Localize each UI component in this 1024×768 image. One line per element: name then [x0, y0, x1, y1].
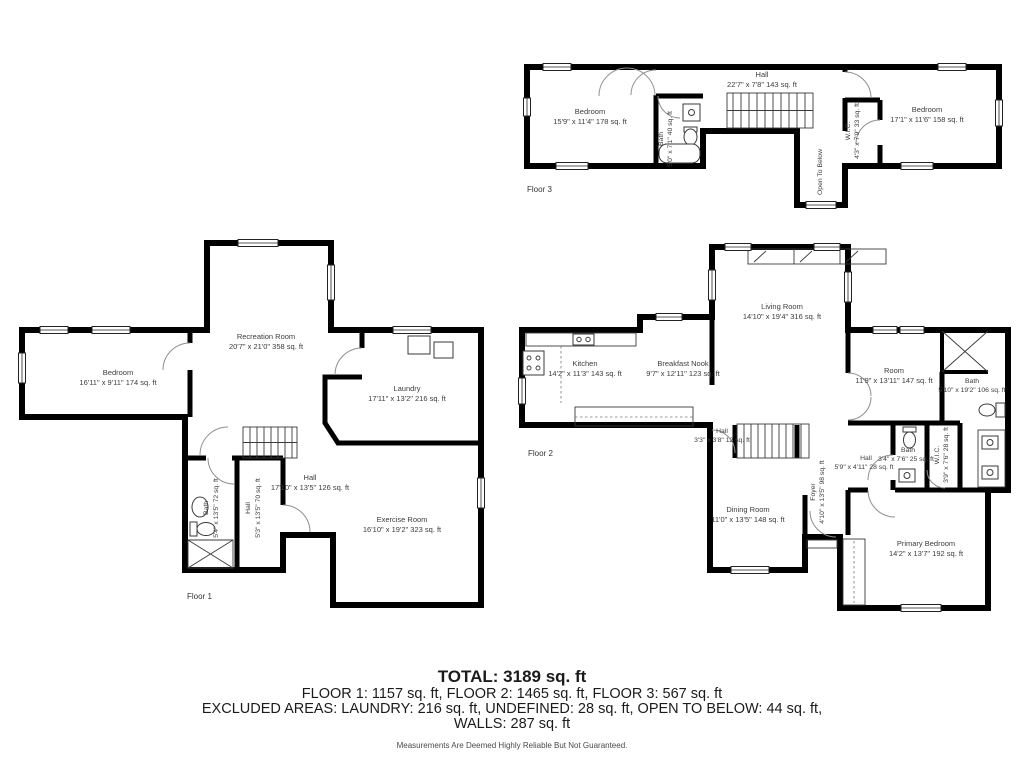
floor2-wic-label: W.I.C. [934, 446, 941, 465]
floor1-outer-walls [22, 243, 481, 605]
floor3-hall-label: Hall [756, 70, 769, 79]
floor2-hall-label: Hall [860, 455, 872, 462]
floor3-bedroom-left-label: Bedroom [575, 107, 605, 116]
summary-block: TOTAL: 3189 sq. ft FLOOR 1: 1157 sq. ft,… [0, 668, 1024, 750]
floor2-bath-small-label: Bath [901, 447, 915, 454]
total-area: TOTAL: 3189 sq. ft [0, 668, 1024, 685]
floor1-exercise-label: Exercise Room [377, 515, 428, 524]
floor2-hall-small-label: Hall [716, 428, 728, 435]
floor2-hall-dims: 5'9" x 4'11" 28 sq. ft [834, 464, 893, 471]
floor2-living-dims: 14'10" x 19'4" 316 sq. ft [743, 312, 822, 321]
floor2-foyer-label: Foyer [810, 483, 817, 501]
floor3-bedroom-right-dims: 17'1" x 11'6" 158 sq. ft [890, 115, 964, 124]
floor-areas: FLOOR 1: 1157 sq. ft, FLOOR 2: 1465 sq. … [0, 687, 1024, 702]
floor3-bath-dims: 5'0" x 7'1" 40 sq. ft [667, 111, 674, 167]
floor3-caption: Floor 3 [527, 185, 552, 194]
walls-area: WALLS: 287 sq. ft [0, 717, 1024, 732]
floor1-bedroom-label: Bedroom [103, 368, 133, 377]
disclaimer: Measurements Are Deemed Highly Reliable … [0, 741, 1024, 750]
floor2-room-label: Room [884, 366, 904, 375]
floor2-entry-step [807, 540, 837, 548]
floor3-bedroom-left-dims: 15'9" x 11'4" 178 sq. ft [553, 117, 627, 126]
floor1-bath-dims: 5'4" x 13'5" 72 sq. ft [213, 478, 220, 538]
floor2-bath-main-dims: 5'10" x 19'2" 106 sq. ft [938, 387, 1005, 394]
floor1-laundry-dims: 17'11" x 13'2" 216 sq. ft [368, 394, 447, 403]
floor2-foyer-dims: 4'10" x 13'5" 98 sq. ft [819, 460, 826, 523]
floor2-nook-label: Breakfast Nook [657, 359, 709, 368]
floor3-hall-dims: 22'7" x 7'8" 143 sq. ft [727, 80, 798, 89]
floorplan-page: Bedroom 15'9" x 11'4" 178 sq. ft Bath 5'… [0, 0, 1024, 768]
excluded-areas: EXCLUDED AREAS: LAUNDRY: 216 sq. ft, UND… [0, 702, 1024, 717]
floor1-plan: Recreation Room 20'7" x 21'0" 358 sq. ft… [19, 240, 485, 606]
floor2-kitchen-label: Kitchen [572, 359, 597, 368]
floor2-primary-dims: 14'2" x 13'7" 192 sq. ft [889, 549, 964, 558]
floor2-dining-label: Dining Room [726, 505, 769, 514]
floor1-hall-side-label: Hall [245, 502, 252, 514]
floor1-recreation-dims: 20'7" x 21'0" 358 sq. ft [229, 342, 304, 351]
floor2-nook-dims: 9'7" x 12'11" 123 sq. ft [646, 369, 720, 378]
floor3-wic-label: W.I.C. [845, 122, 852, 141]
floor1-exercise-dims: 16'10" x 19'2" 323 sq. ft [363, 525, 442, 534]
floor2-living-label: Living Room [761, 302, 803, 311]
floor1-hall-dims: 17'10" x 13'5" 126 sq. ft [271, 483, 350, 492]
floor2-dining-dims: 11'0" x 13'5" 148 sq. ft [711, 515, 785, 524]
floor2-hall-small-dims: 3'3" x 3'8" 12 sq. ft [694, 437, 750, 444]
floor1-bedroom-dims: 16'11" x 9'11" 174 sq. ft [79, 378, 157, 387]
floor2-bath-small-dims: 3'4" x 7'6" 25 sq. ft [878, 456, 934, 463]
floor2-room-dims: 11'9" x 13'11" 147 sq. ft [855, 376, 933, 385]
floor2-bath-main-label: Bath [965, 378, 979, 385]
floor1-caption: Floor 1 [187, 592, 212, 601]
floor2-caption: Floor 2 [528, 449, 553, 458]
floor1-bath-label: Bath [203, 501, 210, 515]
floor1-recreation-label: Recreation Room [237, 332, 295, 341]
floor3-open-to-below-label: Open To Below [817, 149, 824, 195]
floor3-plan: Bedroom 15'9" x 11'4" 178 sq. ft Bath 5'… [524, 64, 1003, 209]
floor1-laundry-label: Laundry [393, 384, 420, 393]
floor1-hall-side-dims: 5'3" x 13'5" 70 sq. ft [255, 478, 262, 538]
floor3-bedroom-right-label: Bedroom [912, 105, 942, 114]
floor2-wic-dims: 3'9" x 7'6" 28 sq. ft [943, 427, 950, 483]
floor2-primary-label: Primary Bedroom [897, 539, 955, 548]
floorplan-drawing: Bedroom 15'9" x 11'4" 178 sq. ft Bath 5'… [0, 0, 1024, 768]
floor2-kitchen-dims: 14'2" x 11'3" 143 sq. ft [548, 369, 622, 378]
floor1-hall-label: Hall [304, 473, 317, 482]
floor3-bath-label: Bath [658, 132, 665, 146]
floor3-wic-dims: 4'3" x 7'9" 33 sq. ft [854, 103, 861, 159]
floor2-plan: Living Room 14'10" x 19'4" 316 sq. ft Ki… [519, 244, 1009, 612]
